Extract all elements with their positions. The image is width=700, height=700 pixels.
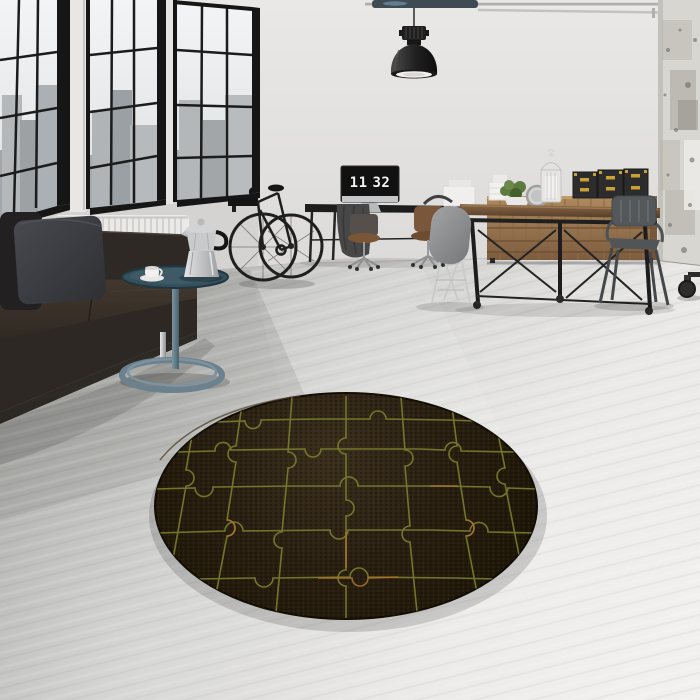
bike-saddle (268, 185, 284, 192)
clock-minutes: 32 (373, 175, 391, 191)
storage-boxes (573, 169, 648, 198)
monitor-clock: 1132 (341, 168, 399, 198)
clock-hours: 11 (350, 175, 368, 191)
concrete-column (658, 0, 700, 271)
sofa-pillow (13, 215, 107, 305)
wall-rack (228, 198, 258, 206)
scene-svg (0, 0, 700, 700)
loft-room-photo: 1132 (0, 0, 700, 700)
window-pillar (166, 0, 173, 204)
factory-windows (0, 0, 260, 229)
